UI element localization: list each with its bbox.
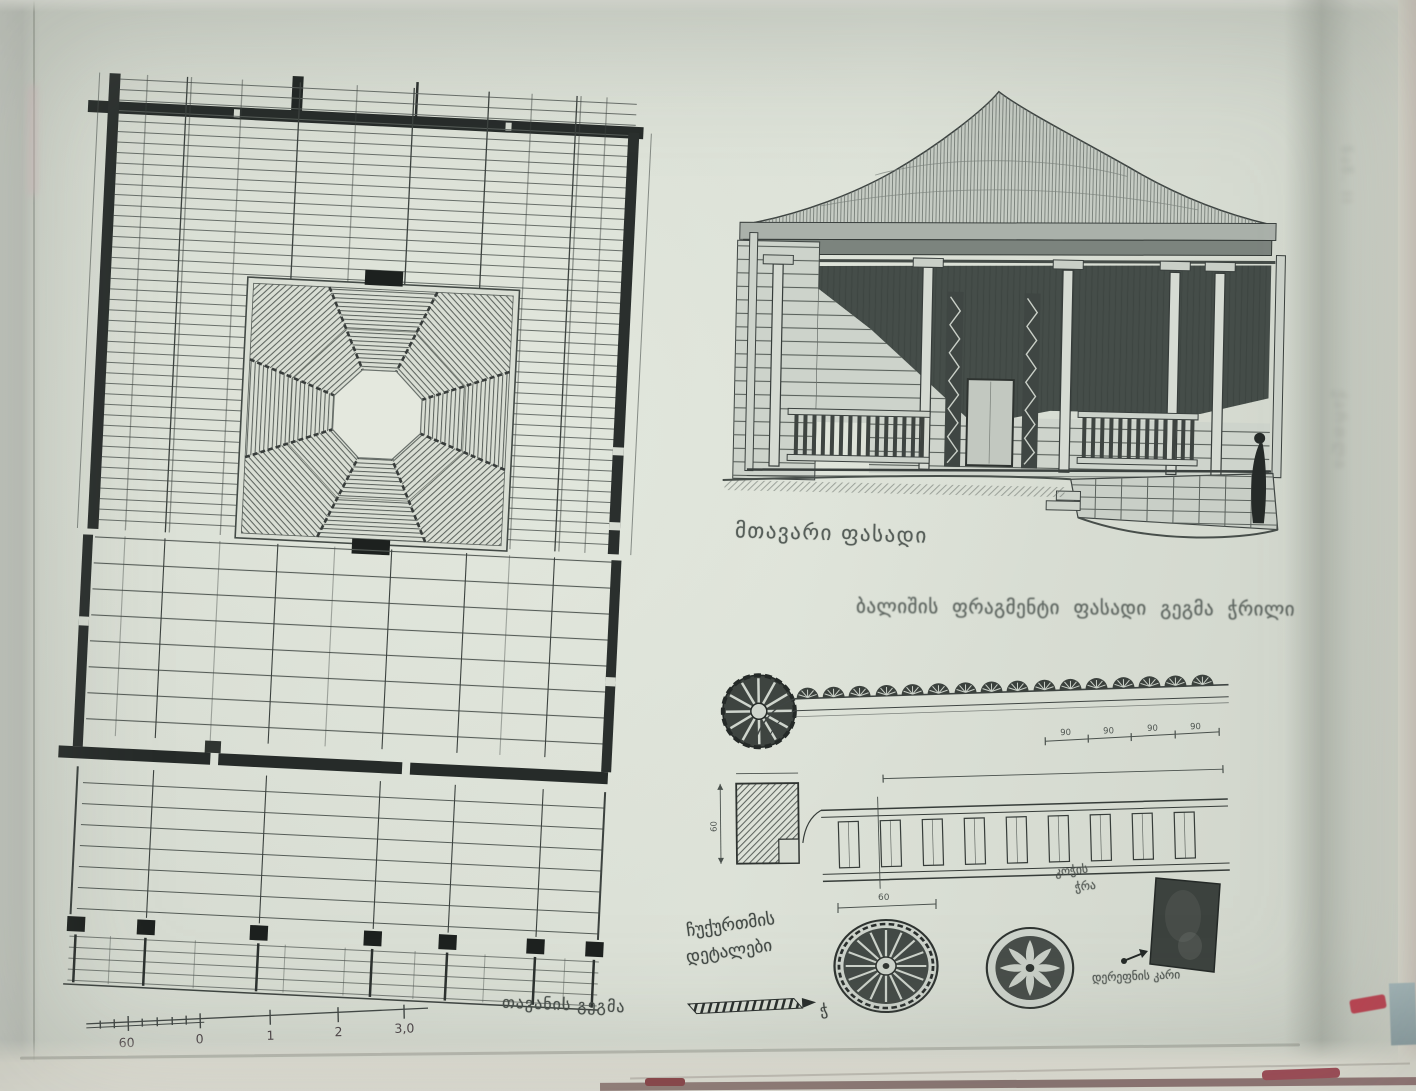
scale-label: 2 bbox=[334, 1024, 342, 1039]
dim-label: 60 bbox=[710, 821, 720, 832]
ornament-rosette-2 bbox=[987, 928, 1073, 1008]
caption-panel-top-line1: კოჭის bbox=[1054, 862, 1088, 879]
fan-ornament-row bbox=[796, 674, 1213, 698]
rosette-dimension: 60 bbox=[838, 893, 936, 913]
dim-label: 90 bbox=[1103, 726, 1114, 736]
scale-label: 60 bbox=[119, 1035, 135, 1050]
frieze-dimension-line: 90 90 90 90 bbox=[1045, 722, 1219, 745]
skylight-beam-top bbox=[365, 270, 404, 287]
scale-label: 0 bbox=[195, 1031, 203, 1046]
margin-note-top: ნაწ. II bbox=[1338, 146, 1354, 346]
hatched-square-detail: 60 bbox=[709, 773, 799, 864]
frieze-detail-drawing: 90 90 90 90 bbox=[722, 669, 1229, 750]
scale-label: 1 bbox=[266, 1028, 274, 1043]
caption-hatch-glyph: ჭ bbox=[819, 1001, 829, 1020]
ornament-rosette-1 bbox=[834, 920, 937, 1012]
caption-panel-top: კოჭის ჭრა bbox=[1054, 860, 1096, 898]
railing-plan-drawing: 60 bbox=[709, 765, 1230, 892]
dim-label: 60 bbox=[878, 893, 890, 903]
dim-label: 90 bbox=[1060, 728, 1071, 738]
dim-label: 90 bbox=[1147, 724, 1158, 734]
scale-bar: 60 0 1 2 3,0 bbox=[86, 1004, 429, 1051]
book-photo: 60 0 1 2 3,0 bbox=[0, 0, 1416, 1091]
rosette-wheel bbox=[722, 675, 795, 748]
entrance-door bbox=[966, 379, 1014, 466]
door-panel-detail bbox=[1121, 878, 1220, 972]
margin-note-bottom: ქართლი bbox=[1331, 390, 1349, 660]
ceiling-floor-plan-drawing bbox=[45, 66, 653, 1010]
facade-elevation-drawing bbox=[722, 86, 1289, 539]
caption-balcony-fragment: ბალიშის ფრაგმენტი ფასადი გეგმა ჭრილი bbox=[856, 595, 1295, 620]
caption-panel-top-line2: ჭრა bbox=[1074, 877, 1097, 896]
scale-label: 3,0 bbox=[394, 1020, 414, 1035]
baluster-band bbox=[801, 765, 1230, 891]
chevron-scale bbox=[688, 997, 816, 1014]
stone-foundation bbox=[1046, 469, 1279, 530]
gvirgvini-skylight bbox=[235, 264, 521, 561]
roof bbox=[754, 87, 1272, 234]
dim-label: 90 bbox=[1190, 722, 1201, 732]
